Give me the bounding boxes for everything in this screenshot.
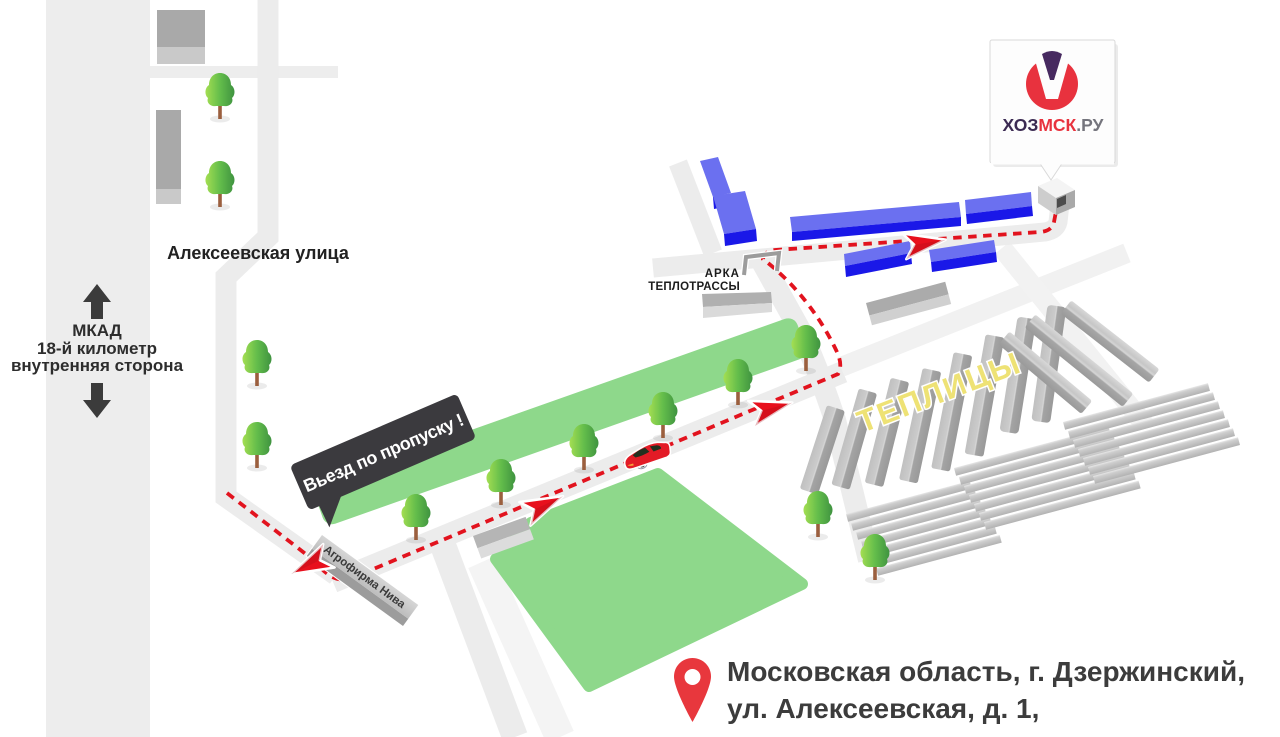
svg-text:внутренняя сторона: внутренняя сторона (11, 356, 184, 375)
svg-text:МКАД: МКАД (72, 321, 122, 340)
svg-text:ТЕПЛОТРАССЫ: ТЕПЛОТРАССЫ (648, 281, 740, 293)
svg-text:АРКА: АРКА (705, 268, 740, 280)
svg-text:Алексеевская улица: Алексеевская улица (167, 243, 350, 263)
svg-text:ХОЗМСК.РУ: ХОЗМСК.РУ (1003, 115, 1105, 135)
svg-text:Московская область, г. Дзержин: Московская область, г. Дзержинский, (727, 656, 1245, 687)
svg-text:ул. Алексеевская, д. 1,: ул. Алексеевская, д. 1, (727, 693, 1039, 724)
